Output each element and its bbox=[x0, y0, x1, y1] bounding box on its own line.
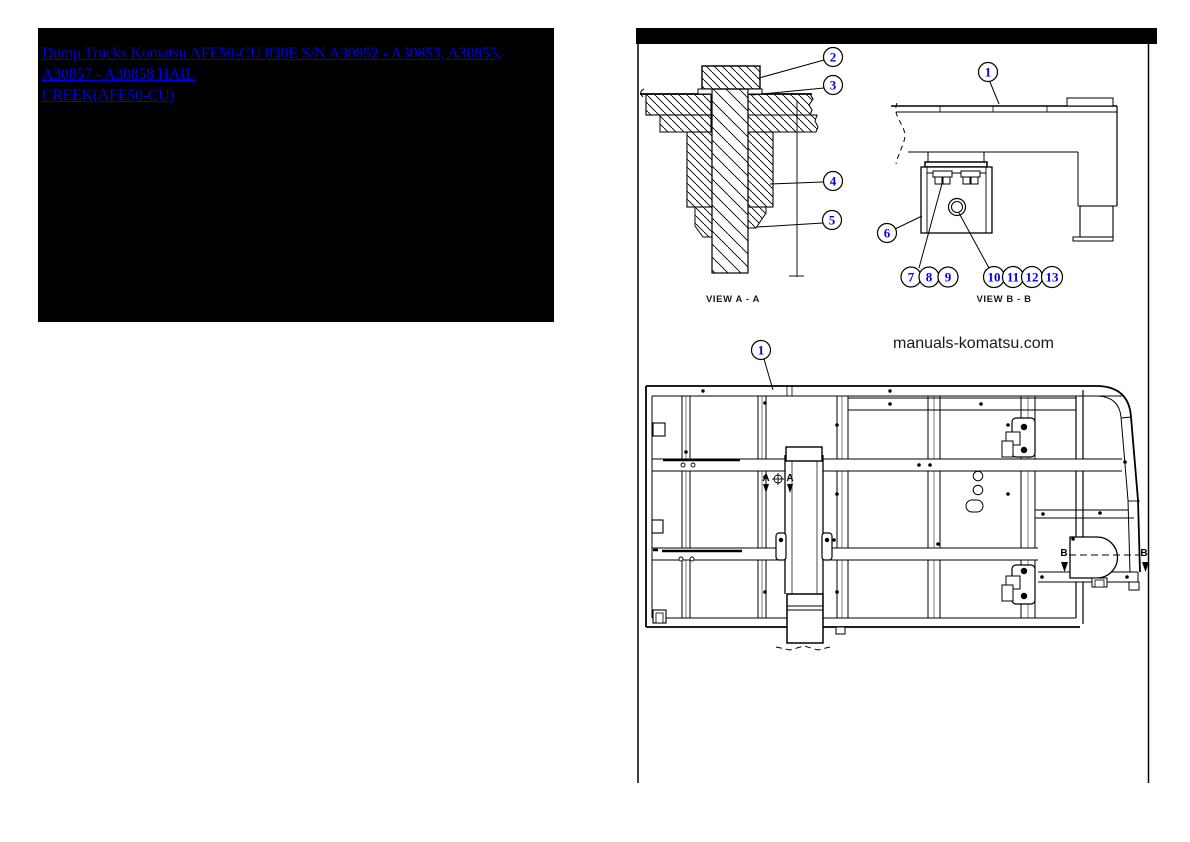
watermark-text: manuals-komatsu.com bbox=[893, 335, 1054, 352]
callout-1-upper[interactable]: 1 bbox=[979, 63, 1000, 105]
view-b-b-drawing bbox=[891, 98, 1117, 241]
callout-9-number: 9 bbox=[945, 270, 952, 285]
callout-3[interactable]: 3 bbox=[752, 76, 843, 96]
callout-5-number: 5 bbox=[829, 213, 836, 228]
callout-10-number: 10 bbox=[988, 270, 1001, 285]
plan-clips bbox=[652, 418, 1035, 623]
callout-1-lower-number: 1 bbox=[758, 343, 765, 358]
callout-4-number: 4 bbox=[830, 174, 837, 189]
view-b-label: VIEW B - B bbox=[976, 294, 1031, 305]
plan-center-channel bbox=[776, 447, 832, 650]
callout-6[interactable]: 6 bbox=[878, 216, 923, 243]
callout-13-number: 13 bbox=[1046, 270, 1060, 285]
section-a-letter-right: A bbox=[786, 473, 793, 484]
callout-1-lower[interactable]: 1 bbox=[752, 341, 774, 391]
callout-3-number: 3 bbox=[830, 78, 837, 93]
callout-2[interactable]: 2 bbox=[759, 48, 843, 79]
section-b-letter-right: B bbox=[1140, 548, 1147, 559]
plan-view-drawing: B B A A bbox=[646, 386, 1149, 650]
callout-6-number: 6 bbox=[884, 226, 891, 241]
callout-1-upper-number: 1 bbox=[985, 65, 992, 80]
callout-12-number: 12 bbox=[1026, 270, 1039, 285]
callout-5[interactable]: 5 bbox=[757, 211, 842, 230]
callout-7-number: 7 bbox=[908, 270, 915, 285]
callout-4[interactable]: 4 bbox=[770, 172, 843, 191]
section-a-letter-left: A bbox=[762, 473, 769, 484]
callout-2-number: 2 bbox=[830, 50, 837, 65]
view-a-a-drawing bbox=[640, 66, 818, 277]
callout-11-number: 11 bbox=[1007, 270, 1019, 285]
parts-diagram: VIEW A - A VIEW B - B bbox=[0, 0, 1190, 842]
section-b-letter-left: B bbox=[1060, 548, 1067, 559]
view-a-label: VIEW A - A bbox=[706, 294, 760, 305]
callout-8-number: 8 bbox=[926, 270, 933, 285]
